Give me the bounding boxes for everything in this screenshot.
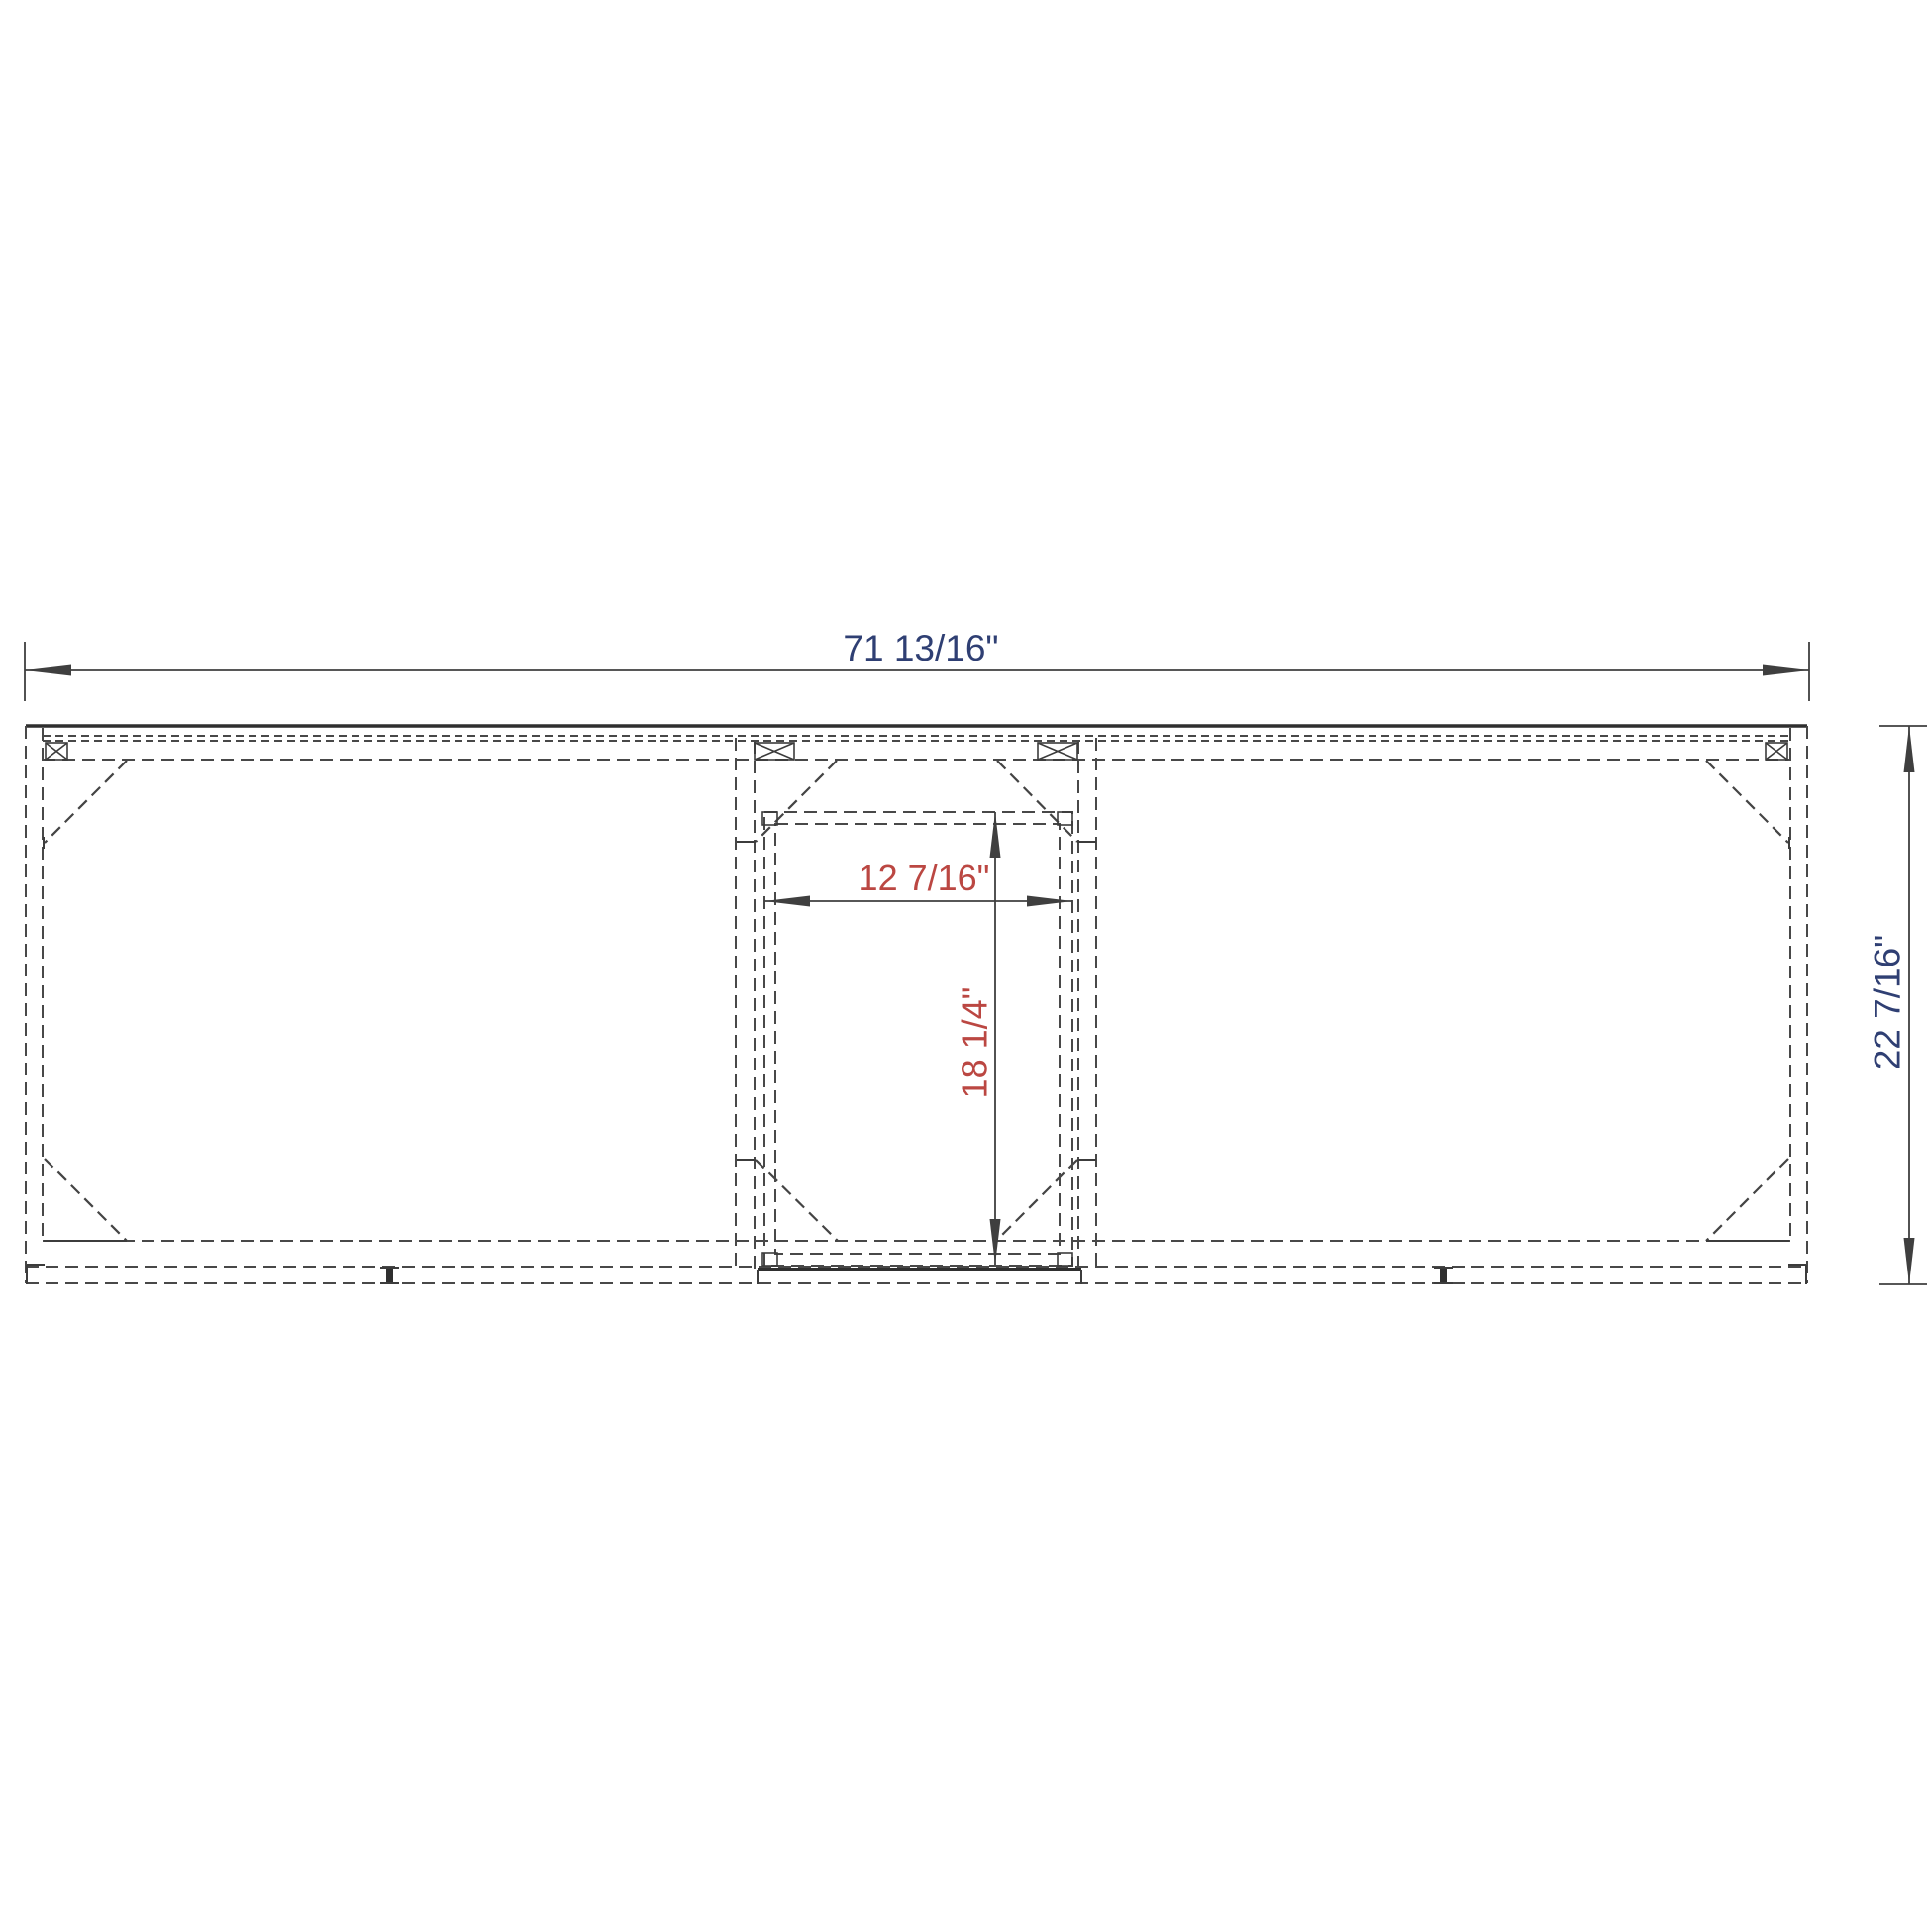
bottom-joint-tick-left bbox=[386, 1269, 393, 1283]
overall-depth-label: 22 7/16" bbox=[1868, 935, 1908, 1070]
brace-top-left bbox=[45, 761, 127, 843]
brace-bottom-left bbox=[45, 1159, 127, 1241]
corner-blocks bbox=[46, 743, 1787, 760]
corner-block-far-right bbox=[1766, 743, 1787, 760]
corner-block-center-left bbox=[755, 743, 794, 760]
arrowhead-right bbox=[1763, 665, 1809, 676]
corner-block-far-left bbox=[46, 743, 67, 760]
brace-center-bottom-left bbox=[756, 1160, 838, 1241]
drawing-canvas: 71 13/16" 22 7/16" bbox=[0, 0, 1927, 1927]
bottom-joint-tick-right bbox=[1440, 1269, 1447, 1283]
brace-center-bottom-right bbox=[996, 1160, 1077, 1241]
center-bottom-plate bbox=[758, 1270, 1081, 1284]
corner-block-center-right bbox=[1038, 743, 1077, 760]
brace-bottom-right bbox=[1706, 1159, 1788, 1241]
arrowhead-top bbox=[1904, 726, 1915, 772]
vanity-top-view-drawing: 71 13/16" 22 7/16" bbox=[0, 0, 1927, 1927]
top-rail bbox=[43, 736, 1790, 760]
overall-width-dimension: 71 13/16" bbox=[25, 628, 1809, 701]
brace-center-top-right bbox=[997, 761, 1077, 842]
bottom-rails bbox=[26, 1241, 1807, 1284]
arrowhead-bottom bbox=[1904, 1238, 1915, 1284]
cabinet-outline bbox=[26, 726, 1807, 1283]
overall-width-label: 71 13/16" bbox=[843, 628, 998, 668]
opening-width-label: 12 7/16" bbox=[859, 858, 990, 898]
brace-top-right bbox=[1706, 761, 1788, 843]
arrowhead-left bbox=[764, 896, 810, 907]
corner-braces bbox=[44, 761, 1789, 1241]
opening-depth-label: 18 1/4" bbox=[955, 987, 995, 1099]
overall-depth-dimension: 22 7/16" bbox=[1868, 726, 1927, 1284]
arrowhead-top bbox=[990, 812, 1001, 858]
center-divider-walls bbox=[736, 738, 1096, 1270]
arrowhead-right bbox=[1027, 896, 1072, 907]
brace-center-top-left bbox=[756, 761, 837, 842]
arrowhead-left bbox=[25, 665, 71, 676]
opening-width-dimension: 12 7/16" bbox=[764, 858, 1072, 907]
